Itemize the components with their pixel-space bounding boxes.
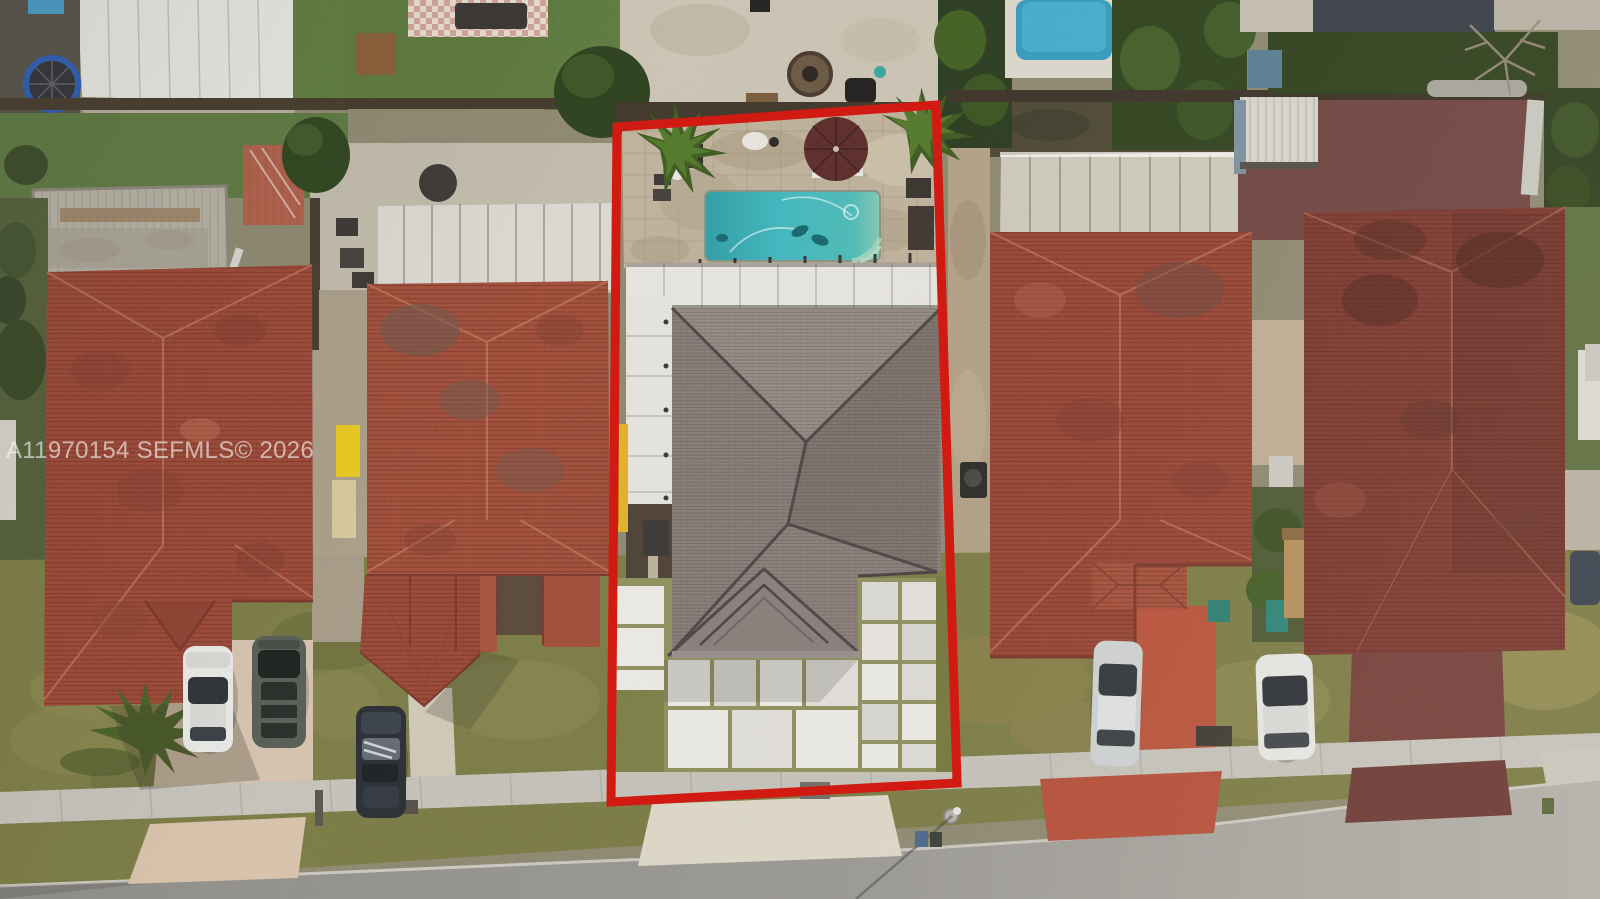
svg-text:A11970154 SEFMLS© 2026: A11970154 SEFMLS© 2026	[6, 437, 314, 464]
